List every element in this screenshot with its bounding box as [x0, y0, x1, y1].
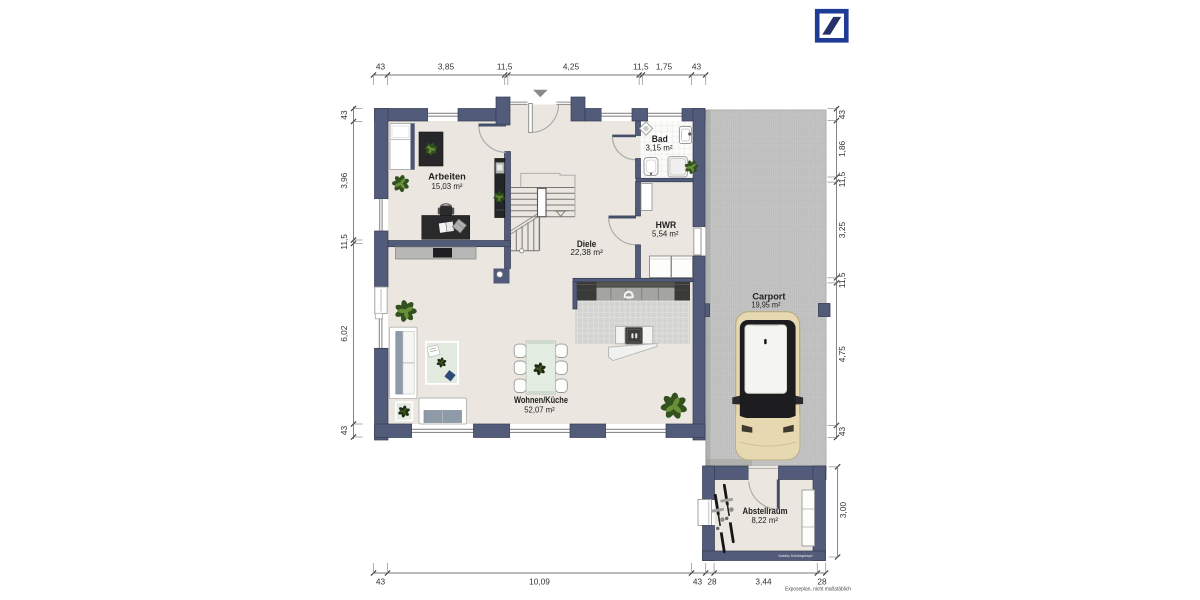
svg-text:11,5: 11,5: [339, 234, 349, 250]
svg-text:1,86: 1,86: [837, 140, 847, 157]
svg-text:43: 43: [339, 426, 349, 436]
svg-text:Wohnen/Küche: Wohnen/Küche: [514, 395, 568, 405]
svg-text:5,54 m²: 5,54 m²: [652, 229, 679, 239]
svg-text:11,5: 11,5: [633, 62, 649, 72]
svg-text:43: 43: [376, 576, 386, 586]
svg-text:43: 43: [376, 62, 386, 72]
svg-text:28: 28: [707, 576, 717, 586]
svg-text:8,22 m²: 8,22 m²: [751, 515, 778, 525]
svg-text:3,96: 3,96: [339, 172, 349, 189]
svg-text:11,5: 11,5: [497, 62, 513, 72]
svg-text:15,03 m²: 15,03 m²: [432, 181, 463, 191]
svg-text:43: 43: [837, 110, 847, 120]
svg-text:6,02: 6,02: [339, 325, 349, 342]
svg-text:3,00: 3,00: [838, 502, 848, 519]
svg-text:43: 43: [692, 62, 702, 72]
svg-text:3,15 m²: 3,15 m²: [646, 143, 673, 153]
svg-text:11,5: 11,5: [837, 171, 847, 187]
svg-text:43: 43: [339, 110, 349, 120]
svg-text:22,38 m²: 22,38 m²: [570, 247, 603, 257]
svg-text:19,95 m²: 19,95 m²: [752, 300, 781, 310]
svg-text:43: 43: [693, 576, 703, 586]
svg-text:10,09: 10,09: [529, 576, 550, 586]
svg-text:11,5: 11,5: [837, 272, 847, 288]
svg-text:52,07 m²: 52,07 m²: [524, 405, 555, 415]
svg-text:28: 28: [817, 576, 827, 586]
svg-text:4,25: 4,25: [563, 62, 580, 72]
svg-text:Illustration: Einrichtungsbeis: Illustration: Einrichtungsbeispiel: [779, 553, 813, 558]
svg-text:Exposeplan, nicht maßstäblich: Exposeplan, nicht maßstäblich: [785, 587, 851, 593]
svg-text:3,25: 3,25: [837, 222, 847, 239]
svg-text:3,85: 3,85: [438, 62, 455, 72]
svg-text:1,75: 1,75: [656, 62, 673, 72]
svg-text:3,44: 3,44: [755, 576, 772, 586]
svg-text:4,75: 4,75: [837, 346, 847, 363]
svg-text:43: 43: [837, 427, 847, 437]
